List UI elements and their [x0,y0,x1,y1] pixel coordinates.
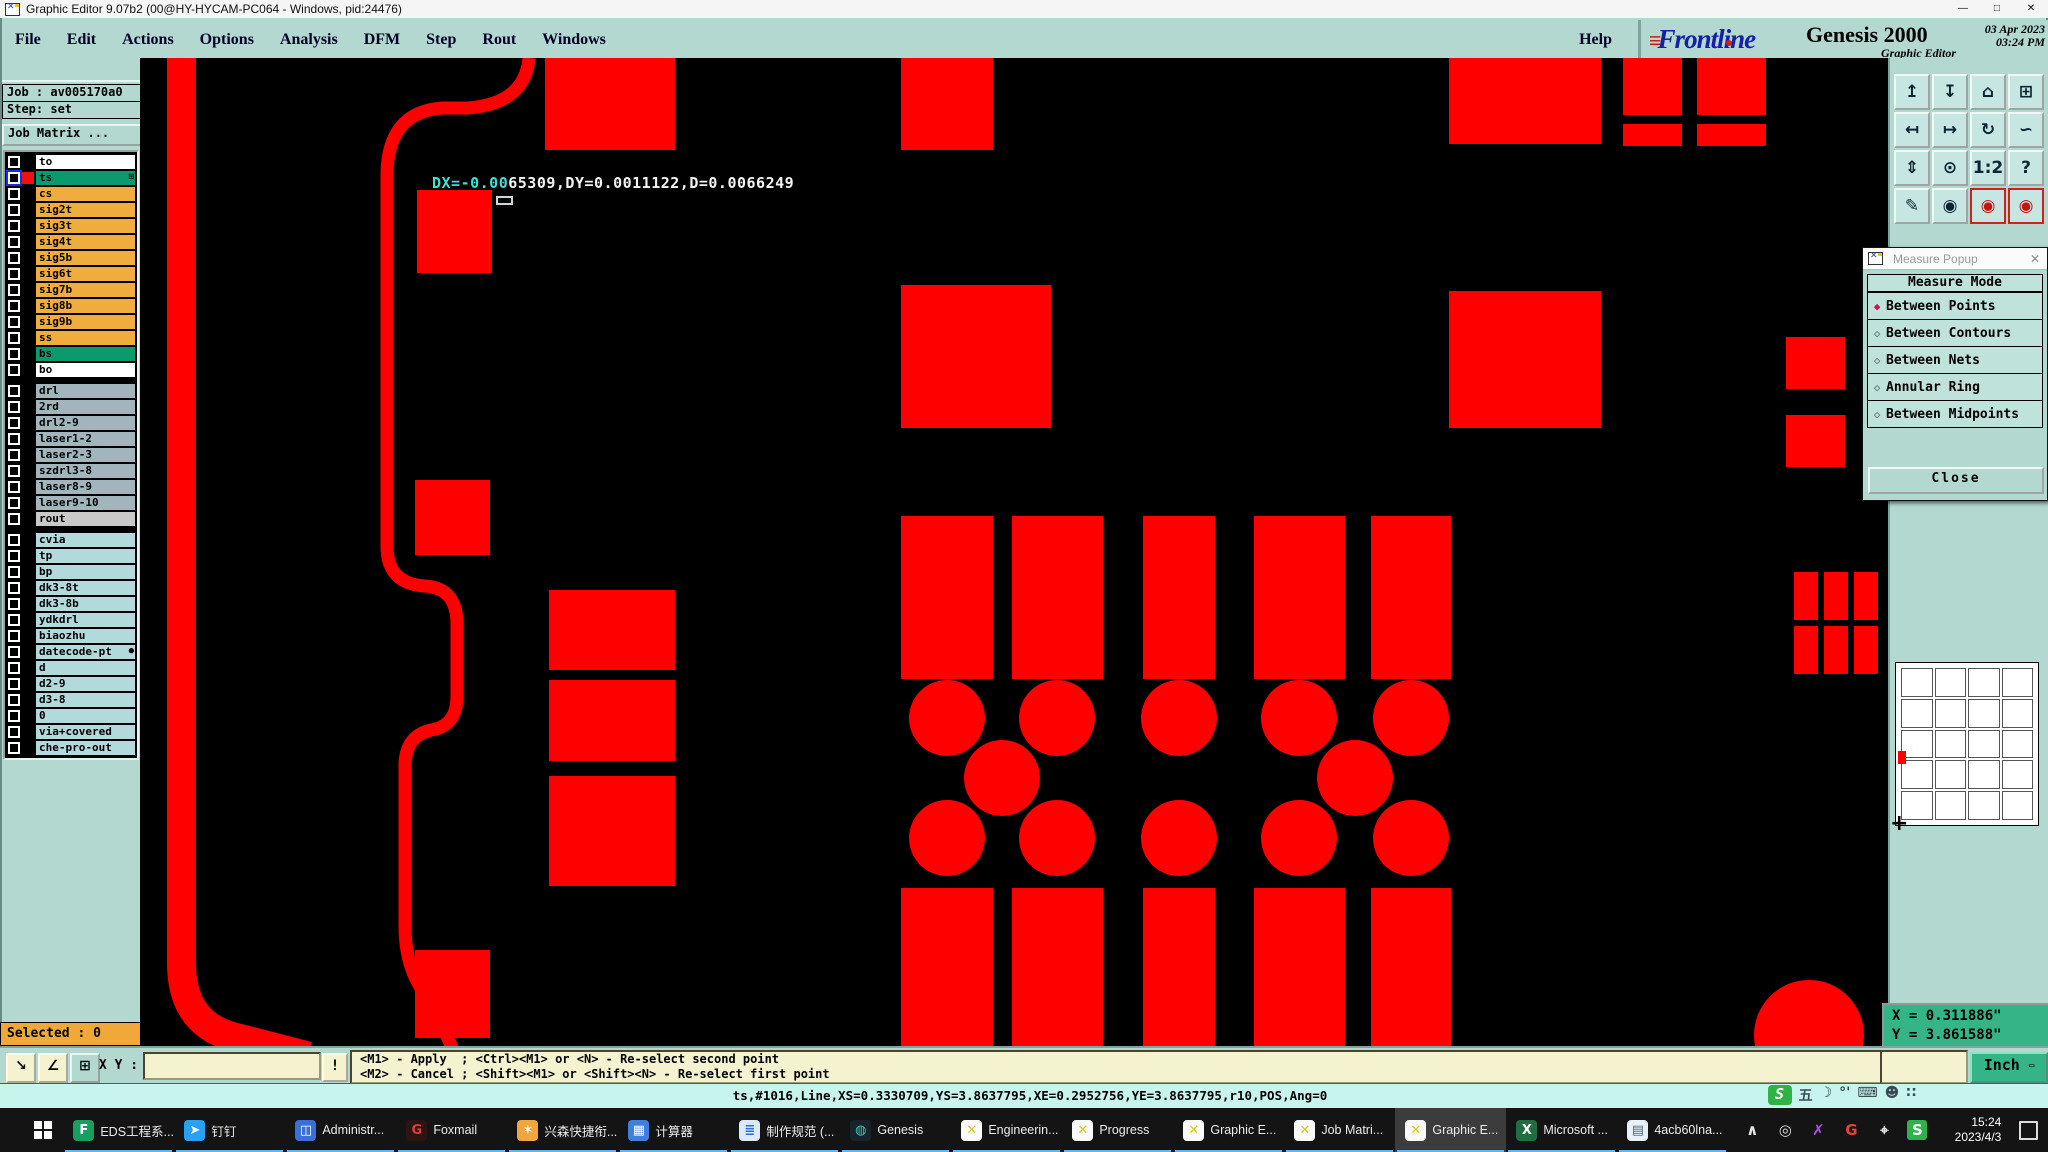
layer-row[interactable]: sig8b [6,298,136,314]
menu-item[interactable]: DFM [351,31,413,49]
layer-name: sig2t [39,203,72,217]
view-toolbar-button[interactable]: 1:2 [1970,150,2006,186]
taskbar-app-label: Administr... [322,1123,384,1137]
layer-row[interactable]: d [6,660,136,676]
job-label: Job : av005170a0 [2,84,144,102]
xy-coordinate-input[interactable] [143,1052,321,1080]
taskbar-app-icon: ✕ [961,1120,982,1141]
taskbar-app-icon: ✕ [1183,1120,1204,1141]
layer-color-swatch[interactable] [22,582,34,594]
layer-color-swatch[interactable] [22,348,34,360]
taskbar-app-label: Microsoft ... [1543,1123,1608,1137]
layer-checkbox[interactable] [8,662,20,674]
menu-item[interactable]: Actions [109,31,187,49]
taskbar-item[interactable]: ➤ 钉钉 [174,1108,285,1152]
layer-checkbox[interactable] [8,156,20,168]
status-line: ts,#1016,Line,XS=0.3330709,YS=3.8637795,… [0,1083,2048,1111]
ime-tool-icon[interactable]: ☻ [1885,1085,1900,1105]
taskbar-app-icon: ◍ [850,1120,871,1141]
layer-row[interactable]: rout [6,511,136,527]
layer-color-swatch[interactable] [22,497,34,509]
layer-badge [134,677,135,691]
layer-badge: ● [129,645,135,659]
layer-checkbox[interactable] [8,630,20,642]
bottom-bar-spacer [1880,1050,1968,1084]
layer-color-swatch[interactable] [22,284,34,296]
toolbar-button-icon: ◉ [1981,196,1996,216]
layer-checkbox[interactable] [8,364,20,376]
layer-checkbox[interactable] [8,614,20,626]
toolbar-button-icon: ◉ [2019,196,2034,216]
taskbar-app-label: Progress [1099,1123,1149,1137]
layer-checkbox[interactable] [8,385,20,397]
view-toolbar-button[interactable]: ⇕ [1894,150,1930,186]
measure-readout: DX=-0.0065309,DY=0.0011122,D=0.0066249 [432,174,794,192]
layer-checkbox[interactable] [8,550,20,562]
layer-checkbox[interactable] [8,284,20,296]
taskbar-item[interactable]: ✕ Graphic E... [1173,1108,1284,1152]
layer-badge [134,219,135,233]
layer-color-swatch[interactable] [22,433,34,445]
view-toolbar-button[interactable]: ? [2008,150,2044,186]
tray-icon[interactable]: ◎ [1775,1120,1795,1140]
layer-name: che-pro-out [39,741,112,755]
minimize-button[interactable]: — [1946,0,1980,18]
layer-color-swatch[interactable] [22,417,34,429]
ime-tool-icon[interactable]: °' [1839,1085,1850,1105]
layer-badge [134,613,135,627]
view-toolbar-button[interactable]: ↻ [1970,112,2006,148]
measure-mode-header: Measure Mode [1867,274,2043,292]
layer-row[interactable]: ss [6,330,136,346]
layer-checkbox[interactable] [8,497,20,509]
tray-icon[interactable]: ⌖ [1874,1120,1894,1140]
layer-name: rout [39,512,66,526]
layer-checkbox[interactable] [8,566,20,578]
layer-row[interactable]: dk3-8t [6,580,136,596]
layer-checkbox[interactable] [8,204,20,216]
ime-tool-icon[interactable]: ⌨ [1857,1085,1877,1105]
layer-badge [134,203,135,217]
layer-name: sig6t [39,267,72,281]
layer-badge [134,299,135,313]
layer-badge [134,741,135,755]
view-toolbar-button[interactable]: ↦ [1932,112,1968,148]
view-toolbar-button[interactable]: ↥ [1894,74,1930,110]
view-toolbar-button[interactable]: ⊙ [1932,150,1968,186]
pcb-artwork [140,58,1888,1046]
layer-badge [134,496,135,510]
layer-name: bp [39,565,52,579]
window-titlebar: Graphic Editor 9.07b2 (00@HY-HYCAM-PC064… [0,0,2048,19]
layer-row[interactable]: cvia [6,532,136,548]
layer-badge [134,315,135,329]
toolbar-button-icon: ? [2021,158,2031,178]
taskbar-app-icon: ▦ [628,1120,649,1141]
layer-checkbox[interactable] [8,598,20,610]
taskbar-app-label: EDS工程系... [100,1121,174,1140]
popup-window-icon [1868,252,1883,265]
layer-checkbox[interactable] [8,449,20,461]
taskbar-app-icon: ▤ [1627,1120,1648,1141]
layer-badge [134,581,135,595]
layer-checkbox[interactable] [8,710,20,722]
layer-color-swatch[interactable] [22,385,34,397]
layer-name: d2-9 [39,677,66,691]
product-name: Genesis 2000 [1806,22,1928,48]
layer-name: laser8-9 [39,480,92,494]
layer-color-swatch[interactable] [22,726,34,738]
layer-color-swatch[interactable] [22,481,34,493]
layer-badge [134,480,135,494]
tray-icon[interactable]: ✗ [1808,1120,1828,1140]
layer-name: sig9b [39,315,72,329]
taskbar-item[interactable]: ◍ Genesis [840,1108,951,1152]
windows-logo-icon [34,1121,52,1139]
layer-color-swatch[interactable] [22,252,34,264]
step-label: Step: set [2,101,144,119]
feature-status-text: ts,#1016,Line,XS=0.3330709,YS=3.8637795,… [300,1088,1760,1103]
taskbar-item[interactable]: X Microsoft ... [1506,1108,1617,1152]
taskbar-app-label: 4acb60lna... [1654,1123,1722,1137]
layer-badge [134,400,135,414]
layer-color-swatch[interactable] [22,300,34,312]
layer-checkbox[interactable] [8,582,20,594]
measure-mode-option[interactable]: Between Points [1867,292,2043,320]
layer-badge [134,448,135,462]
menu-item[interactable]: File [2,31,54,49]
layer-color-swatch[interactable] [22,614,34,626]
layer-row[interactable]: ydkdrl [6,612,136,628]
layer-checkbox[interactable] [8,401,20,413]
taskbar-item[interactable]: ▤ 4acb60lna... [1617,1108,1728,1152]
taskbar-item[interactable]: ✕ Progress [1062,1108,1173,1152]
layer-name: laser1-2 [39,432,92,446]
taskbar-app-label: 钉钉 [211,1121,236,1140]
layer-checkbox[interactable] [8,348,20,360]
taskbar-app-icon: ◫ [295,1120,316,1141]
layer-badge [134,235,135,249]
layer-name: 2rd [39,400,59,414]
layer-checkbox[interactable] [8,726,20,738]
layer-row[interactable]: laser2-3 [6,447,136,463]
layer-checkbox[interactable] [8,300,20,312]
layer-name: dk3-8b [39,597,79,611]
layer-checkbox[interactable] [8,332,20,344]
layer-name: d3-8 [39,693,66,707]
taskbar-clock[interactable]: 15:242023/4/3 [1939,1115,2001,1145]
layer-row[interactable]: via+covered [6,724,136,740]
layer-checkbox[interactable] [8,534,20,546]
layer-row[interactable]: datecode-pt● [6,644,136,660]
sogou-ime-icon[interactable]: S [1768,1085,1792,1105]
layer-checkbox[interactable] [8,646,20,658]
cursor-coordinates: X = 0.311886"Y = 3.861588" [1882,1003,2048,1051]
measure-mode-option[interactable]: Between Contours [1867,320,2043,347]
toolbar-button-icon: ⌂ [1982,82,1994,102]
layer-color-swatch[interactable] [22,550,34,562]
menu-item[interactable]: Windows [529,31,619,49]
layer-color-swatch[interactable] [22,513,34,525]
menu-item[interactable]: Options [187,31,267,49]
view-toolbar-button[interactable]: ◉ [1932,188,1968,224]
layer-color-swatch[interactable] [22,662,34,674]
taskbar-app-label: Engineerin... [988,1123,1058,1137]
taskbar-app-icon: G [406,1120,427,1141]
layer-checkbox[interactable] [8,188,20,200]
layer-checkbox[interactable] [8,433,20,445]
taskbar: F EDS工程系... ➤ 钉钉 ◫ Administr... G Foxmai… [0,1108,2048,1152]
overview-cell [1901,668,1933,697]
radio-diamond-icon [1868,300,1886,313]
layer-badge [134,693,135,707]
measure-mode-option[interactable]: Between Nets [1867,347,2043,374]
layer-color-swatch[interactable] [22,220,34,232]
layer-color-swatch[interactable] [22,172,34,184]
layer-color-swatch[interactable] [22,598,34,610]
bottom-bar: ↘ ∠ ⊞ X Y : ! <M1> - Apply ; <Ctrl><M1> … [0,1046,2048,1085]
layer-color-swatch[interactable] [22,364,34,376]
layer-color-swatch[interactable] [22,332,34,344]
layer-row[interactable]: dk3-8b [6,596,136,612]
taskbar-app-label: Foxmail [433,1123,477,1137]
layer-row[interactable]: drl2-9 [6,415,136,431]
measure-mode-option[interactable]: Annular Ring [1867,374,2043,401]
view-toolbar-button[interactable]: ⌂ [1970,74,2006,110]
layer-row[interactable]: sig3t [6,218,136,234]
pcb-canvas[interactable] [140,58,1888,1046]
layer-color-swatch[interactable] [22,449,34,461]
layer-name: d [39,661,46,675]
layer-name: szdrl3-8 [39,464,92,478]
logo-dot-icon [1726,40,1732,46]
ime-tool-icon[interactable]: ∷ [1906,1085,1916,1105]
layer-name: ts [39,171,52,185]
layer-row[interactable]: sig4t [6,234,136,250]
tray-icon[interactable]: S [1907,1120,1927,1140]
layer-badge [134,661,135,675]
layer-row[interactable]: to [6,154,136,170]
layer-color-swatch[interactable] [22,268,34,280]
layer-row[interactable]: bo [6,362,136,378]
layer-color-swatch[interactable] [22,630,34,642]
measure-mode-option[interactable]: Between Midpoints [1867,401,2043,428]
angle-measure-tool-button[interactable]: ∠ [38,1053,68,1083]
layer-checkbox[interactable] [8,252,20,264]
menu-item[interactable]: Edit [54,31,109,49]
layer-checkbox[interactable] [8,742,20,754]
layer-row[interactable]: tp [6,548,136,564]
layer-color-swatch[interactable] [22,465,34,477]
view-toolbar-button[interactable]: ↧ [1932,74,1968,110]
system-tray: ∧◎✗G⌖S [1742,1108,1927,1152]
layer-row[interactable]: ts⊞ [6,170,136,186]
notification-center-icon[interactable] [2019,1121,2038,1140]
layer-row[interactable]: sig6t [6,266,136,282]
layer-row[interactable]: biaozhu [6,628,136,644]
units-button[interactable]: Inch ▭ [1970,1052,2048,1083]
layer-row[interactable]: laser9-10 [6,495,136,511]
menu-item-help[interactable]: Help [1566,31,1638,49]
grid-toggle-button[interactable]: ⊞ [70,1053,100,1083]
taskbar-item[interactable]: ▦ 计算器 [618,1108,729,1152]
layer-checkbox[interactable] [8,481,20,493]
layer-checkbox[interactable] [8,465,20,477]
layer-list: to ts⊞ cs sig2t [3,150,139,760]
layer-checkbox[interactable] [8,172,20,184]
layer-color-swatch[interactable] [22,316,34,328]
toolbar-button-icon: 1:2 [1973,158,2003,178]
layer-row[interactable]: che-pro-out [6,740,136,756]
taskbar-item[interactable]: F EDS工程系... [63,1108,174,1152]
maximize-button[interactable]: □ [1980,0,2014,18]
layer-row[interactable]: bp [6,564,136,580]
sidebar: Job : av005170a0 Step: set Job Matrix ..… [2,60,140,1046]
layer-row[interactable]: d2-9 [6,676,136,692]
layer-name: ydkdrl [39,613,79,627]
menu-item[interactable]: Analysis [267,31,351,49]
layer-checkbox[interactable] [8,513,20,525]
layer-color-swatch[interactable] [22,646,34,658]
layer-badge [134,725,135,739]
view-toolbar-button[interactable]: ◉ [2008,188,2044,224]
layer-checkbox[interactable] [8,316,20,328]
layer-color-swatch[interactable] [22,694,34,706]
view-toolbar-button[interactable]: ✎ [1894,188,1930,224]
taskbar-app-label: Genesis [877,1123,923,1137]
popup-titlebar[interactable]: Measure Popup ✕ [1863,248,2047,270]
taskbar-item[interactable]: ✕ Job Matri... [1284,1108,1395,1152]
layer-row[interactable]: drl [6,383,136,399]
layer-badge [134,432,135,446]
layer-color-swatch[interactable] [22,678,34,690]
layer-name: sig3t [39,219,72,233]
taskbar-app-icon: ✕ [1072,1120,1093,1141]
layer-badge [134,597,135,611]
layer-color-swatch[interactable] [22,236,34,248]
job-matrix-button[interactable]: Job Matrix ... [2,124,146,146]
panel-overview-map[interactable]: + [1895,662,2039,826]
tray-icon[interactable]: ∧ [1742,1120,1762,1140]
layer-name: bo [39,363,52,377]
app-window-icon [5,3,20,16]
layer-color-swatch[interactable] [22,188,34,200]
toolbar-button-icon: ⇕ [1905,158,1919,178]
view-toolbar-button[interactable]: ◉ [1970,188,2006,224]
menu-item[interactable]: Rout [469,31,529,49]
layer-row[interactable]: szdrl3-8 [6,463,136,479]
view-toolbar-button[interactable]: ↤ [1894,112,1930,148]
layer-checkbox[interactable] [8,417,20,429]
layer-checkbox[interactable] [8,694,20,706]
toolbar-button-icon: ↧ [1943,82,1957,102]
layer-row[interactable]: 2rd [6,399,136,415]
taskbar-item[interactable]: ✶ 兴森快捷衔... [507,1108,618,1152]
radio-diamond-icon [1868,327,1886,340]
brand-panel: ≡Frontline Genesis 2000 03 Apr 202303:24… [1638,20,2048,62]
measure-cursor-icon [496,196,513,205]
layer-badge [134,512,135,526]
layer-color-swatch[interactable] [22,534,34,546]
taskbar-item[interactable]: G Foxmail [396,1108,507,1152]
toolbar-button-icon: ∽ [2019,120,2033,140]
layer-row[interactable]: laser1-2 [6,431,136,447]
layer-row[interactable]: sig2t [6,202,136,218]
layer-badge [134,416,135,430]
layer-row[interactable]: d3-8 [6,692,136,708]
toolbar-button-icon: ↥ [1905,82,1919,102]
layer-badge [134,347,135,361]
ime-tool-icon[interactable]: ☽ [1820,1085,1833,1105]
taskbar-app-label: 兴森快捷衔... [544,1121,617,1140]
zoom-select-tool-button[interactable]: ↘ [6,1053,36,1083]
taskbar-app-icon: ≣ [739,1120,760,1141]
taskbar-item[interactable]: ≣ 制作规范 (... [729,1108,840,1152]
taskbar-item[interactable]: ✕ Engineerin... [951,1108,1062,1152]
layer-color-swatch[interactable] [22,710,34,722]
measure-popup: Measure Popup ✕ Measure Mode Between Poi… [1862,247,2048,501]
layer-row[interactable]: laser8-9 [6,479,136,495]
view-toolbar: ↥ ↧ ⌂ ⊞ ↤ ↦ ↻ ∽ ⇕ ⊙ 1:2 ? ✎ ◉ ◉ ◉ [1894,74,2046,224]
layer-name: drl [39,384,59,398]
menu-item[interactable]: Step [413,31,469,49]
layer-name: ss [39,331,52,345]
layer-checkbox[interactable] [8,236,20,248]
exclaim-button[interactable]: ! [322,1053,348,1082]
layer-row[interactable]: cs [6,186,136,202]
layer-row[interactable]: sig9b [6,314,136,330]
layer-badge [134,709,135,723]
layer-checkbox[interactable] [8,678,20,690]
layer-color-swatch[interactable] [22,742,34,754]
tray-icon[interactable]: G [1841,1120,1861,1140]
layer-row[interactable]: sig7b [6,282,136,298]
taskbar-app-label: Graphic E... [1210,1123,1276,1137]
taskbar-item[interactable]: ✕ Graphic E... [1395,1108,1506,1152]
layer-checkbox[interactable] [8,220,20,232]
layer-color-swatch[interactable] [22,566,34,578]
close-button[interactable]: ✕ [2014,0,2048,18]
measure-mode-label: Between Nets [1886,353,1980,368]
layer-badge [134,363,135,377]
ime-tool-icon[interactable]: 五 [1799,1085,1813,1105]
start-button[interactable] [22,1108,63,1152]
layer-name: cs [39,187,52,201]
popup-close-icon[interactable]: ✕ [2030,252,2040,266]
layer-color-swatch[interactable] [22,401,34,413]
layer-badge [134,629,135,643]
layer-color-swatch[interactable] [22,204,34,216]
layer-row[interactable]: bs [6,346,136,362]
radio-diamond-icon [1868,381,1886,394]
layer-row[interactable]: sig5b [6,250,136,266]
layer-color-swatch[interactable] [22,156,34,168]
measure-mode-label: Annular Ring [1886,380,1980,395]
measure-mode-label: Between Points [1886,299,1996,314]
layer-row[interactable]: 0 [6,708,136,724]
taskbar-item[interactable]: ◫ Administr... [285,1108,396,1152]
layer-badge [134,187,135,201]
popup-close-button[interactable]: Close [1868,467,2044,494]
taskbar-app-label: 制作规范 (... [766,1121,834,1140]
taskbar-app-icon: X [1516,1120,1537,1141]
layer-checkbox[interactable] [8,268,20,280]
view-toolbar-button[interactable]: ⊞ [2008,74,2044,110]
view-toolbar-button[interactable]: ∽ [2008,112,2044,148]
taskbar-app-label: Graphic E... [1432,1123,1498,1137]
layer-name: drl2-9 [39,416,79,430]
toolbar-button-icon: ⊙ [1943,158,1957,178]
